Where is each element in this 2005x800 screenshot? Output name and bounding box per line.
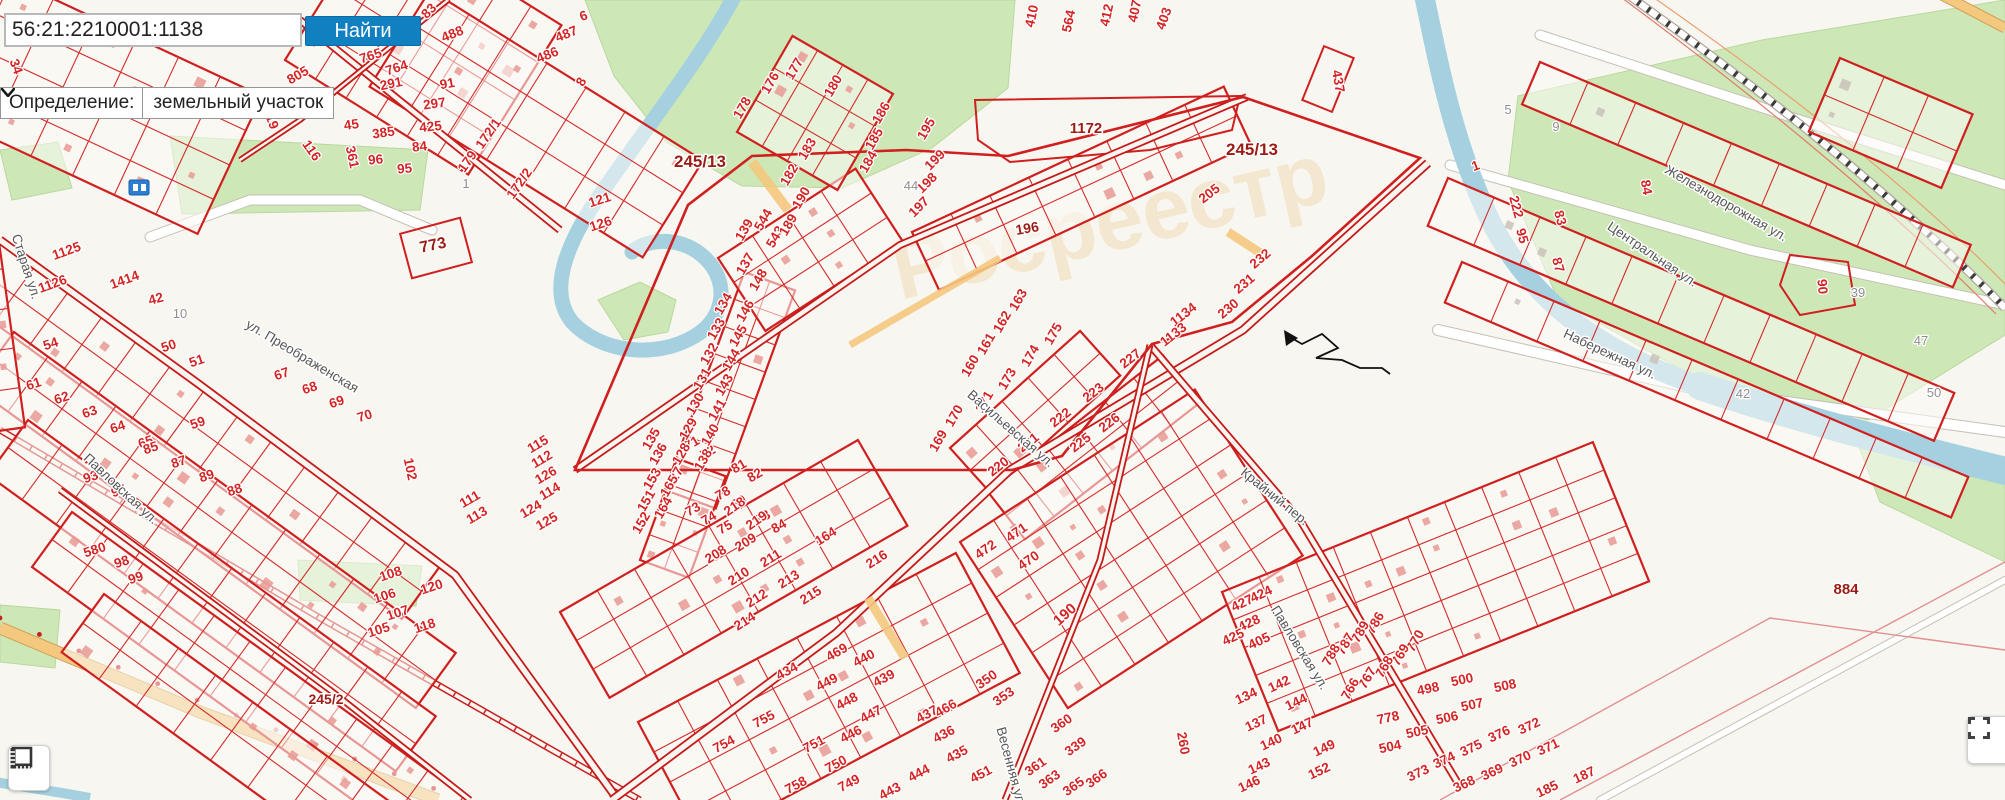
parcel-number: 385 [371,123,396,141]
find-button[interactable]: Найти [305,16,421,46]
quarter-number: 1172 [1070,120,1103,137]
parcel-number: 84 [1638,179,1655,197]
parcel-number: 96 [367,151,384,167]
road-sign-icon [129,180,149,195]
cadastral-map[interactable]: Росреестр8364874864888764765291912974258… [0,0,2005,800]
quarter-number: 245/13 [674,152,726,171]
chevron-down-icon [1,88,15,97]
address-number: 47 [1914,333,1928,348]
measure-tool-button[interactable] [8,745,50,791]
parcel-number: 45 [343,116,360,133]
definition-bar: Определение: земельный участок [0,87,334,119]
definition-select[interactable]: земельный участок [143,88,333,118]
address-number: 44 [904,178,918,193]
parcel-number: 297 [422,95,446,113]
cadastral-map-app: Росреестр8364874864888764765291912974258… [0,0,2005,800]
parcel-number: 425 [419,118,443,135]
address-number: 42 [1736,386,1750,401]
parcel-number: 90 [1814,278,1830,294]
quarter-number: 884 [1833,581,1859,598]
address-number: 9 [1552,119,1559,134]
quarter-number: 245/13 [1226,140,1278,159]
definition-value: земельный участок [153,92,323,114]
address-number: 50 [1927,385,1941,400]
cadastral-number-input[interactable] [4,13,302,47]
fullscreen-button[interactable] [1967,716,2005,764]
boundary-dot [37,632,42,637]
building [0,363,7,370]
address-number: 1 [462,176,469,191]
address-number: 39 [1851,285,1865,300]
parcel-number: 91 [439,75,457,92]
parcel-number: 84 [411,138,428,155]
ruler-area-icon [9,746,35,772]
fullscreen-icon [1968,717,1990,739]
definition-label: Определение: [1,88,143,118]
parcel-number: 95 [396,160,413,176]
building [0,320,6,328]
address-number: 5 [1504,102,1511,117]
address-number: 10 [173,306,187,321]
quarter-number: 245/2 [308,691,343,707]
